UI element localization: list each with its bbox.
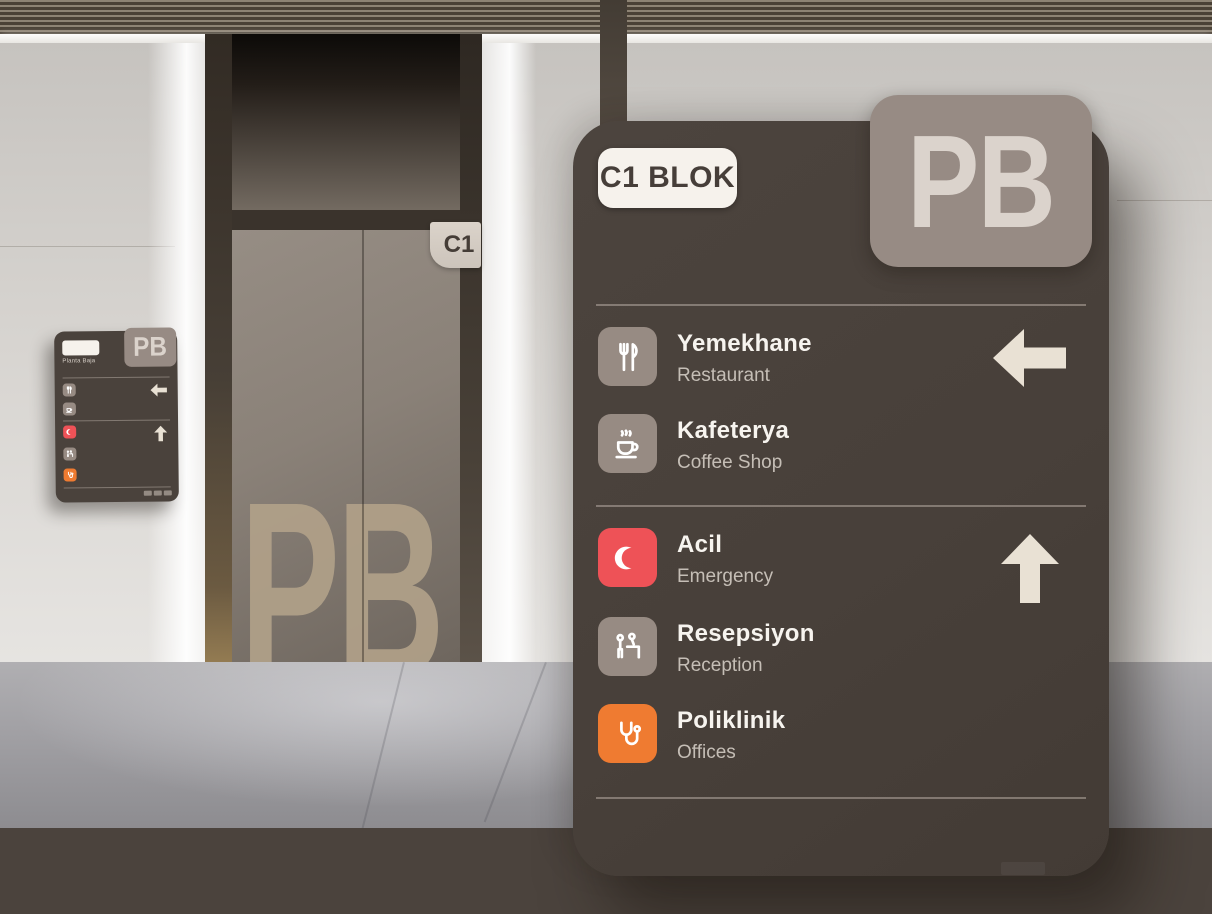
row-labels: Poliklinik Offices bbox=[677, 704, 785, 764]
row-title: Kafeterya bbox=[677, 417, 789, 445]
elevator-jamb-right bbox=[460, 34, 482, 662]
crescent-icon bbox=[65, 427, 74, 436]
row-labels: Yemekhane Restaurant bbox=[677, 327, 812, 387]
row-labels: Acil Emergency bbox=[677, 528, 773, 588]
block-badge: C1 BLOK bbox=[598, 148, 737, 208]
row-subtitle: Offices bbox=[677, 742, 785, 764]
fork-knife-icon-tile bbox=[598, 327, 657, 386]
wall-seam bbox=[1117, 200, 1212, 201]
panel-watermark bbox=[1001, 862, 1045, 875]
directory-row: Resepsiyon Reception bbox=[598, 617, 815, 677]
coffee-cup-icon bbox=[65, 404, 74, 413]
arrow-up-icon bbox=[154, 425, 167, 441]
arrow-up-icon bbox=[1001, 534, 1059, 603]
elevator-recess: PB bbox=[205, 34, 482, 662]
fork-knife-icon bbox=[610, 339, 646, 375]
row-subtitle: Emergency bbox=[677, 566, 773, 588]
row-title: Poliklinik bbox=[677, 707, 785, 735]
row-title: Yemekhane bbox=[677, 330, 812, 358]
stethoscope-icon-tile bbox=[64, 468, 77, 481]
directory-row: Yemekhane Restaurant bbox=[598, 327, 812, 387]
coffee-cup-icon bbox=[610, 426, 646, 462]
row-subtitle: Coffee Shop bbox=[677, 452, 789, 474]
backlit-wall-edge-right bbox=[478, 43, 536, 662]
fork-knife-icon-tile bbox=[63, 383, 76, 396]
coffee-cup-icon-tile bbox=[63, 402, 76, 415]
directory-row: Kafeterya Coffee Shop bbox=[598, 414, 789, 474]
floor-name-label: Planta Baja bbox=[62, 358, 95, 364]
reception-icon bbox=[610, 629, 646, 665]
row-title: Resepsiyon bbox=[677, 620, 815, 648]
divider bbox=[596, 797, 1086, 799]
reception-icon bbox=[65, 449, 74, 458]
divider bbox=[596, 304, 1086, 306]
door-seam bbox=[362, 230, 364, 662]
coffee-cup-icon-tile bbox=[598, 414, 657, 473]
stethoscope-icon bbox=[66, 470, 75, 479]
divider bbox=[63, 376, 170, 378]
arrow-left-icon bbox=[993, 329, 1066, 387]
row-labels: Resepsiyon Reception bbox=[677, 617, 815, 677]
divider bbox=[64, 486, 171, 488]
door-floor-letters: PB bbox=[240, 496, 441, 662]
elevator-block-flag: C1 bbox=[430, 222, 481, 268]
elevator-door-header bbox=[232, 210, 460, 230]
divider bbox=[596, 505, 1086, 507]
row-subtitle: Reception bbox=[677, 655, 815, 677]
crescent-icon-tile bbox=[63, 425, 76, 438]
directory-sign-panel: C1 BLOK PB Yemekhane Restaurant Kafetery… bbox=[573, 121, 1109, 876]
directory-row: Acil Emergency bbox=[598, 528, 773, 588]
crescent-icon bbox=[610, 540, 646, 576]
reception-icon-tile bbox=[63, 447, 76, 460]
floor-code: PB bbox=[907, 106, 1054, 257]
stethoscope-icon bbox=[610, 716, 646, 752]
divider bbox=[63, 419, 170, 421]
block-badge-mini bbox=[62, 340, 99, 355]
elevator-door: PB bbox=[232, 230, 460, 662]
fork-knife-icon bbox=[65, 385, 74, 394]
floor-badge-mini: PB bbox=[124, 327, 176, 367]
crescent-icon-tile bbox=[598, 528, 657, 587]
wall-sign-small: Planta Baja PB bbox=[54, 330, 179, 502]
row-labels: Kafeterya Coffee Shop bbox=[677, 414, 789, 474]
directory-row: Poliklinik Offices bbox=[598, 704, 785, 764]
stethoscope-icon-tile bbox=[598, 704, 657, 763]
arrow-left-icon bbox=[149, 383, 169, 396]
row-title: Acil bbox=[677, 531, 773, 559]
elevator-jamb-left bbox=[205, 34, 232, 662]
reception-icon-tile bbox=[598, 617, 657, 676]
row-subtitle: Restaurant bbox=[677, 365, 812, 387]
floor-badge: PB bbox=[870, 95, 1092, 267]
elevator-lobby-scene: PB C1 Planta Baja PB bbox=[0, 0, 1212, 914]
sign-footer-marks bbox=[144, 490, 172, 495]
